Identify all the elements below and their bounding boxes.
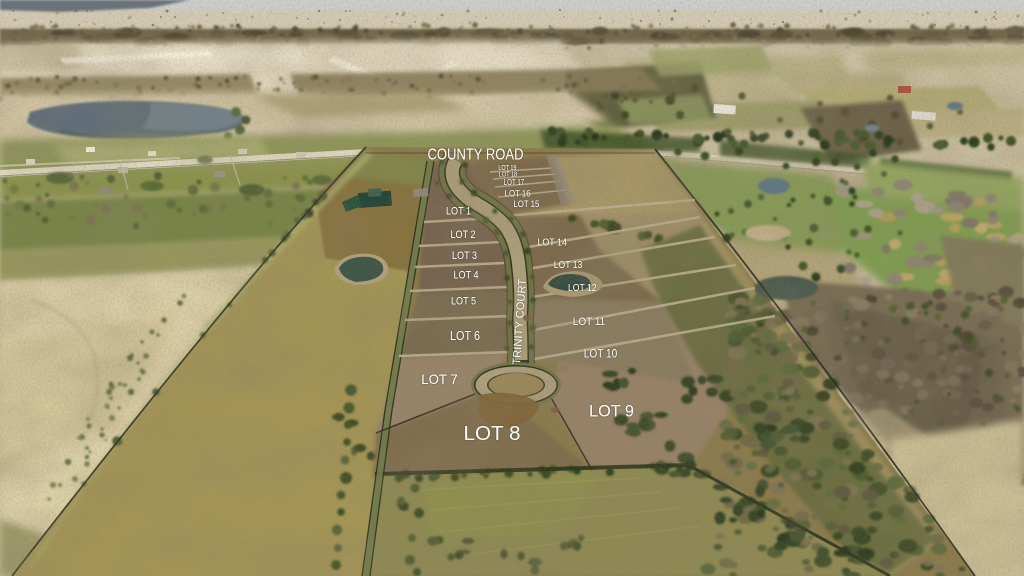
svg-text:LOT 13: LOT 13 [554, 260, 583, 271]
svg-text:LOT 19: LOT 19 [498, 165, 516, 172]
svg-text:LOT 11: LOT 11 [573, 316, 606, 328]
svg-text:LOT 6: LOT 6 [450, 329, 480, 343]
svg-text:LOT 3: LOT 3 [452, 250, 477, 262]
svg-text:LOT 16: LOT 16 [505, 188, 531, 199]
svg-text:LOT 9: LOT 9 [589, 403, 634, 421]
svg-text:LOT 12: LOT 12 [568, 282, 597, 294]
svg-text:LOT 18: LOT 18 [499, 171, 517, 178]
svg-text:LOT 14: LOT 14 [537, 237, 567, 248]
svg-text:LOT 1: LOT 1 [446, 206, 471, 218]
svg-text:LOT 4: LOT 4 [454, 270, 479, 282]
svg-text:LOT 8: LOT 8 [464, 423, 521, 445]
svg-text:LOT 17: LOT 17 [504, 178, 525, 187]
svg-text:LOT 2: LOT 2 [451, 229, 476, 241]
svg-text:LOT 15: LOT 15 [513, 199, 539, 210]
svg-text:COUNTY ROAD: COUNTY ROAD [428, 147, 524, 164]
svg-text:LOT 5: LOT 5 [451, 296, 476, 308]
svg-text:LOT 7: LOT 7 [421, 371, 458, 387]
svg-text:LOT 10: LOT 10 [584, 349, 618, 361]
